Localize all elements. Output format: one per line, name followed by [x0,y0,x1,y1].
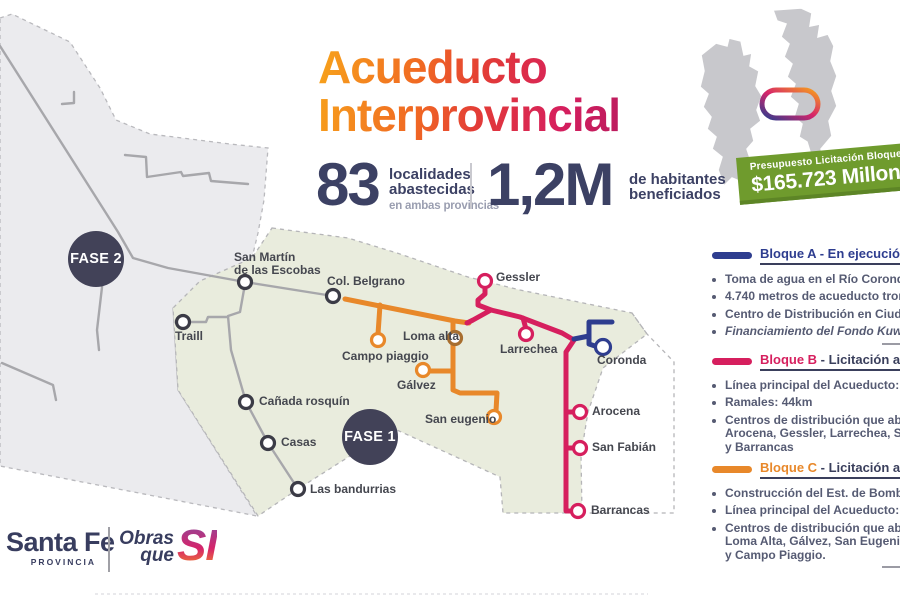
santa-fe-logo-sub: PROVINCIA [6,557,96,567]
legend-block-name: Bloque C [760,460,817,475]
bullet-dot [712,330,716,334]
marker-san-fabian [574,442,587,455]
stat-localities-value: 83 [316,158,379,212]
marker-arocena [574,406,587,419]
stat-inhabitants-label: de habitantes beneficiados [629,172,726,203]
legend-item: Construcción del Est. de Bombeo N°2 [712,487,900,500]
town-label-campo-piaggio: Campo piaggio [342,350,429,363]
town-label-larrechea: Larrechea [500,343,557,356]
town-label-san-martin: San Martín de las Escobas [234,251,321,276]
legend-divider [882,566,900,568]
town-label-traill: Traill [175,330,203,343]
legend-item-text: Ramales: 44km [725,396,812,409]
legend-block-header: Bloque B - Licitación actual [712,352,900,371]
marker-col-belgrano [327,290,340,303]
legend-block-bloque-c: Bloque C - Licitación actualConstrucción… [712,460,900,568]
town-label-canada-rosquin: Cañada rosquín [259,395,350,408]
legend-block-bloque-b: Bloque B - Licitación actualLínea princi… [712,352,900,454]
legend-block-name: Bloque A [760,246,816,261]
legend-item-text: Línea principal del Acueducto: 20,4km [725,379,900,392]
legend-item: Centros de distribución que abastecerá:L… [712,522,900,562]
slogan-obras-que: Obras que [116,530,174,565]
legend-item: Toma de agua en el Río Coronda [712,273,900,286]
stat-inhabitants-label-2: beneficiados [629,187,726,202]
bullet-dot [712,313,716,317]
marker-san-martin [239,276,252,289]
legend-item: Línea principal del Acueducto: 20,4km [712,379,900,392]
marker-larrechea [520,328,533,341]
legend-item: Línea principal del Acueducto: 17,7km [712,504,900,517]
legend-item: 4.740 metros de acueducto troncal [712,290,900,303]
bullet-dot [712,492,716,496]
legend-item: Financiamiento del Fondo Kuwaití [712,325,900,338]
legend-item-text: Línea principal del Acueducto: 17,7km [725,504,900,517]
legend-items: Construcción del Est. de Bombeo N°2Línea… [712,487,900,562]
bullet-dot [712,401,716,405]
bullet-dot [712,419,716,423]
legend-item-text: Centro de Distribución en Ciudad de Coro… [725,308,900,321]
town-label-arocena: Arocena [592,405,640,418]
stat-localities-label: localidades abastecidas en ambas provinc… [389,167,499,212]
marker-canada-rosquin [240,396,253,409]
fase-2-badge: FASE 2 [68,231,124,287]
legend-item: Ramales: 44km [712,396,900,409]
legend-block-suffix: - Licitación actual [817,352,900,367]
page-title: Acueducto Interprovincial [318,44,620,140]
stat-localities-label-1: localidades [389,167,499,182]
marker-casas [262,437,275,450]
legend-item-text: Construcción del Est. de Bombeo N°2 [725,487,900,500]
legend-divider [882,343,900,345]
stats-divider [470,163,472,209]
marker-las-bandurrias [292,483,305,496]
legend-color-pill [712,252,752,259]
town-label-casas: Casas [281,436,316,449]
town-label-san-eugenio: San eugenio [425,413,496,426]
town-label-coronda: Coronda [597,354,646,367]
legend-item-text: Toma de agua en el Río Coronda [725,273,900,286]
town-label-san-fabian: San Fabián [592,441,656,454]
marker-galvez [417,364,430,377]
bullet-dot [712,527,716,531]
bullet-dot [712,509,716,513]
legend-color-pill [712,466,752,473]
town-label-loma-alta: Loma alta [403,330,459,343]
infographic-root: Acueducto Interprovincial 83 localidades… [0,0,900,598]
marker-barrancas [572,505,585,518]
legend-item: Centros de distribución que abastecerá:A… [712,414,900,454]
legend-item-text: Financiamiento del Fondo Kuwaití [725,325,900,338]
legend: Bloque A - En ejecuciónToma de agua en e… [703,246,900,575]
fase-1-badge: FASE 1 [342,409,398,465]
legend-block-title: Bloque A - En ejecución [760,246,900,265]
slogan-si: SI [177,521,217,571]
legend-item: Centro de Distribución en Ciudad de Coro… [712,308,900,321]
legend-color-pill [712,358,752,365]
legend-block-header: Bloque A - En ejecución [712,246,900,265]
stat-localities-sub: en ambas provincias [389,201,499,213]
bullet-dot [712,384,716,388]
legend-item-text: Centros de distribución que abastecerá:L… [725,522,900,562]
town-label-barrancas: Barrancas [591,504,650,517]
legend-items: Toma de agua en el Río Coronda4.740 metr… [712,273,900,339]
legend-block-title: Bloque C - Licitación actual [760,460,900,479]
legend-block-name: Bloque B [760,352,817,367]
stat-inhabitants-label-1: de habitantes [629,172,726,187]
marker-campo-piaggio [372,334,385,347]
legend-block-title: Bloque B - Licitación actual [760,352,900,371]
legend-block-suffix: - En ejecución [816,246,900,261]
province-entre-rios-shape [773,8,837,158]
santa-fe-logo: Santa Fe [6,527,115,558]
bullet-dot [712,295,716,299]
legend-item-text: Centros de distribución que abastecerá:A… [725,414,900,454]
legend-block-bloque-a: Bloque A - En ejecuciónToma de agua en e… [712,246,900,345]
legend-block-suffix: - Licitación actual [817,460,900,475]
marker-gessler [479,275,492,288]
legend-block-header: Bloque C - Licitación actual [712,460,900,479]
town-label-las-bandurrias: Las bandurrias [310,483,396,496]
town-label-gessler: Gessler [496,271,540,284]
town-label-galvez: Gálvez [397,379,436,392]
marker-traill [177,316,190,329]
legend-item-text: 4.740 metros de acueducto troncal [725,290,900,303]
stat-inhabitants-value: 1,2M [487,158,612,212]
town-label-col-belgrano: Col. Belgrano [327,275,405,288]
logo-divider [108,527,110,572]
bullet-dot [712,278,716,282]
legend-items: Línea principal del Acueducto: 20,4kmRam… [712,379,900,454]
stat-localities-label-2: abastecidas [389,182,499,197]
